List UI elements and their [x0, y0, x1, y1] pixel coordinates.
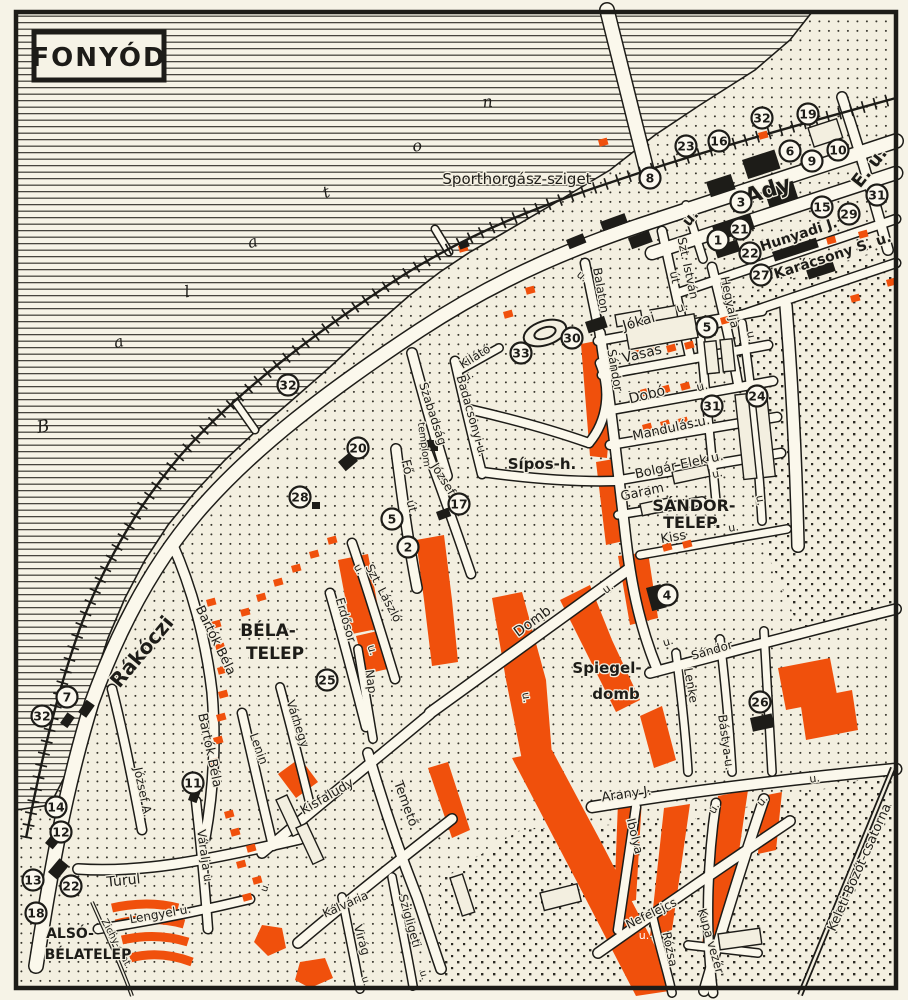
- poi-marker-32: 32: [752, 108, 773, 129]
- street-label: Sípos-h.: [508, 455, 577, 473]
- svg-text:3: 3: [737, 195, 746, 210]
- poi-marker-24: 24: [747, 386, 768, 407]
- water-name-letter: n: [482, 92, 494, 112]
- svg-text:7: 7: [63, 690, 72, 705]
- svg-text:32: 32: [33, 709, 50, 724]
- svg-text:17: 17: [450, 497, 467, 512]
- street-label: u.: [727, 520, 740, 535]
- poi-marker-15: 15: [812, 197, 833, 218]
- poi-marker-31: 31: [702, 396, 723, 417]
- poi-marker-7: 7: [57, 687, 78, 708]
- poi-marker-5: 5: [697, 317, 718, 338]
- poi-marker-8: 8: [640, 168, 661, 189]
- svg-text:18: 18: [27, 906, 44, 921]
- svg-text:16: 16: [710, 134, 728, 149]
- poi-marker-25: 25: [317, 670, 338, 691]
- poi-marker-21: 21: [730, 219, 751, 240]
- street-label: BÉLA-: [240, 619, 296, 641]
- svg-text:30: 30: [563, 331, 581, 346]
- black-building: [312, 502, 320, 509]
- svg-text:23: 23: [677, 139, 694, 154]
- outlined-building: [720, 339, 735, 372]
- outlined-building: [704, 341, 719, 374]
- poi-marker-17: 17: [449, 494, 470, 515]
- poi-marker-22: 22: [740, 243, 761, 264]
- svg-text:27: 27: [752, 268, 769, 283]
- poi-marker-3: 3: [731, 192, 752, 213]
- svg-text:22: 22: [741, 246, 758, 261]
- fonyod-town-map: BalatonSporthorgász-szigetAdyE. u.u.Huny…: [0, 0, 908, 1000]
- svg-text:25: 25: [318, 673, 335, 688]
- svg-text:1: 1: [714, 233, 723, 248]
- poi-marker-23: 23: [676, 136, 697, 157]
- poi-marker-5: 5: [382, 509, 403, 530]
- street-label: Sporthorgász-sziget: [442, 170, 591, 188]
- poi-marker-13: 13: [23, 870, 44, 891]
- svg-text:24: 24: [748, 389, 766, 404]
- svg-text:26: 26: [751, 695, 769, 710]
- poi-marker-28: 28: [290, 487, 311, 508]
- street-label: TELEP: [246, 644, 304, 664]
- street-label: u.: [639, 929, 649, 942]
- poi-marker-32: 32: [278, 375, 299, 396]
- poi-marker-11: 11: [183, 773, 204, 794]
- poi-marker-9: 9: [802, 151, 823, 172]
- poi-marker-30: 30: [562, 328, 583, 349]
- svg-text:32: 32: [753, 111, 770, 126]
- street-label: Spiegel-: [572, 659, 641, 677]
- svg-text:4: 4: [663, 588, 672, 603]
- svg-text:33: 33: [512, 346, 529, 361]
- poi-marker-26: 26: [750, 692, 771, 713]
- street-label: u.: [753, 494, 768, 507]
- svg-text:12: 12: [52, 825, 69, 840]
- street-label: ALSÓ-: [46, 924, 94, 942]
- poi-marker-14: 14: [46, 797, 67, 818]
- svg-text:19: 19: [799, 107, 816, 122]
- svg-text:9: 9: [808, 154, 817, 169]
- poi-marker-4: 4: [657, 585, 678, 606]
- street-label: u.: [808, 771, 820, 785]
- poi-marker-2: 2: [398, 537, 419, 558]
- poi-marker-32: 32: [32, 706, 53, 727]
- svg-text:14: 14: [47, 800, 65, 815]
- poi-marker-1: 1: [708, 230, 729, 251]
- map-title: FONYÓD: [31, 41, 166, 73]
- poi-marker-10: 10: [828, 140, 849, 161]
- poi-marker-18: 18: [26, 903, 47, 924]
- street-label: TELEP.: [663, 513, 721, 532]
- svg-text:10: 10: [829, 143, 847, 158]
- street-label: u.: [519, 691, 534, 704]
- svg-text:20: 20: [349, 441, 367, 456]
- poi-marker-12: 12: [51, 822, 72, 843]
- poi-marker-22: 22: [61, 876, 82, 897]
- svg-text:5: 5: [388, 512, 397, 527]
- svg-text:31: 31: [703, 399, 720, 414]
- poi-marker-16: 16: [709, 131, 730, 152]
- svg-text:2: 2: [404, 540, 413, 555]
- svg-text:21: 21: [731, 222, 748, 237]
- poi-marker-20: 20: [348, 438, 369, 459]
- svg-text:13: 13: [24, 873, 41, 888]
- poi-marker-6: 6: [780, 141, 801, 162]
- svg-text:5: 5: [703, 320, 712, 335]
- svg-text:22: 22: [62, 879, 79, 894]
- svg-text:6: 6: [786, 144, 795, 159]
- svg-text:29: 29: [840, 207, 857, 222]
- svg-text:8: 8: [646, 171, 655, 186]
- street-label: BÉLATELEP: [45, 946, 132, 963]
- poi-marker-31: 31: [867, 185, 888, 206]
- poi-marker-19: 19: [798, 104, 819, 125]
- map-canvas: BalatonSporthorgász-szigetAdyE. u.u.Huny…: [0, 0, 908, 1000]
- svg-text:31: 31: [868, 188, 885, 203]
- svg-text:11: 11: [184, 776, 201, 791]
- poi-marker-29: 29: [839, 204, 860, 225]
- street-label: domb: [592, 685, 640, 703]
- svg-text:28: 28: [291, 490, 308, 505]
- svg-text:15: 15: [813, 200, 830, 215]
- svg-text:32: 32: [279, 378, 296, 393]
- poi-marker-27: 27: [751, 265, 772, 286]
- poi-marker-33: 33: [511, 343, 532, 364]
- title-box: FONYÓD: [31, 32, 166, 80]
